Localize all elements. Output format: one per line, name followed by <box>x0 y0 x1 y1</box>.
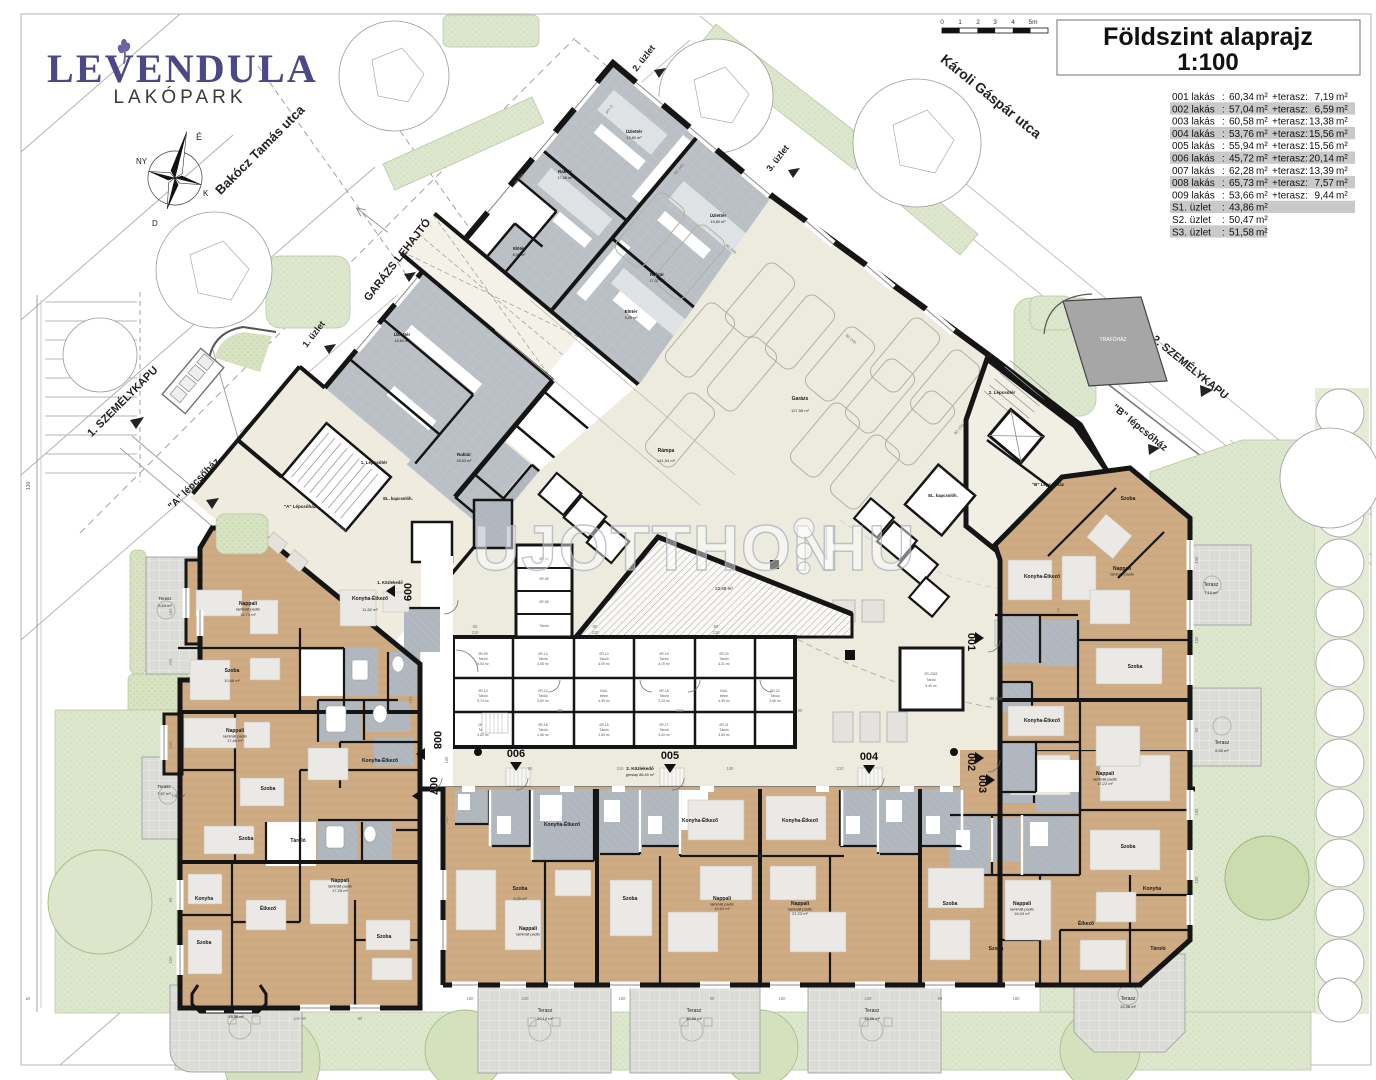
svg-text:008: 008 <box>431 731 443 749</box>
svg-text:13,38 m²: 13,38 m² <box>1120 1004 1136 1009</box>
svg-text:60,58: 60,58 <box>1229 117 1254 128</box>
svg-text:150: 150 <box>1194 876 1199 884</box>
svg-text:Étkező: Étkező <box>1078 919 1094 927</box>
svg-text:EL. kapcsolóh.: EL. kapcsolóh. <box>383 496 413 501</box>
svg-text:Szoba: Szoba <box>377 934 392 940</box>
svg-text:150: 150 <box>467 996 475 1001</box>
svg-text:21,23 m²: 21,23 m² <box>792 911 808 916</box>
svg-text::: : <box>1222 215 1225 226</box>
svg-text:004: 004 <box>860 751 879 763</box>
svg-text:210: 210 <box>713 630 721 635</box>
svg-text:130: 130 <box>26 481 32 490</box>
svg-text:Nappali: Nappali <box>1113 566 1132 572</box>
svg-text:4,31 m²: 4,31 m² <box>718 662 730 666</box>
svg-text:beton: beton <box>600 694 609 698</box>
svg-text:0R-10: 0R-10 <box>478 689 487 693</box>
svg-text:Tároló: Tároló <box>719 657 729 661</box>
svg-text:80: 80 <box>558 708 563 713</box>
svg-text:Garázs: Garázs <box>792 396 809 402</box>
svg-text:15,56: 15,56 <box>1309 141 1334 152</box>
svg-text:210: 210 <box>617 766 625 771</box>
svg-text:002 lakás: 002 lakás <box>1172 104 1215 115</box>
svg-text:Konyha-Étkező: Konyha-Étkező <box>544 820 580 828</box>
svg-text:127,58 m²: 127,58 m² <box>791 408 810 413</box>
svg-text:Szoba: Szoba <box>1121 844 1136 850</box>
svg-text:m²: m² <box>1256 203 1268 214</box>
svg-text:m²: m² <box>1336 117 1348 128</box>
svg-text:80: 80 <box>714 624 719 629</box>
svg-text:+terasz:: +terasz: <box>1272 178 1308 189</box>
svg-text:2,66 m²: 2,66 m² <box>537 733 549 737</box>
svg-text:Tároló: Tároló <box>290 838 305 844</box>
svg-text:LAKÓPARK: LAKÓPARK <box>113 86 246 108</box>
svg-text:0R-2324: 0R-2324 <box>924 672 937 676</box>
svg-text:+terasz:: +terasz: <box>1272 129 1308 140</box>
svg-text:laminált padló: laminált padló <box>516 933 539 937</box>
svg-text:240: 240 <box>865 996 873 1001</box>
svg-text:+terasz:: +terasz: <box>1272 166 1308 177</box>
svg-text::: : <box>1222 154 1225 165</box>
svg-text:Tároló: Tároló <box>1150 946 1165 952</box>
svg-text:m²: m² <box>1256 215 1268 226</box>
svg-text:m²: m² <box>1256 178 1268 189</box>
svg-text:Közl.: Közl. <box>720 689 728 693</box>
svg-text:007 lakás: 007 lakás <box>1172 166 1215 177</box>
svg-text:15,56 m²: 15,56 m² <box>864 1016 880 1021</box>
svg-text:9,46 m²: 9,46 m² <box>925 684 937 688</box>
svg-text:Elötér: Elötér <box>513 246 525 251</box>
svg-text:m²: m² <box>1336 129 1348 140</box>
svg-text:m²: m² <box>1256 117 1268 128</box>
svg-text:Nappali: Nappali <box>239 601 258 607</box>
svg-text:16,09 m²: 16,09 m² <box>1014 911 1030 916</box>
svg-text:7,57 m²: 7,57 m² <box>157 791 171 796</box>
svg-text:Üzlettér: Üzlettér <box>710 212 727 218</box>
svg-text:62,28: 62,28 <box>1229 166 1254 177</box>
svg-text:50,47: 50,47 <box>1229 215 1254 226</box>
svg-text:Tároló: Tároló <box>538 694 548 698</box>
svg-text:Konyha-Étkező: Konyha-Étkező <box>362 756 398 764</box>
svg-text:13,39 m²: 13,39 m² <box>228 1014 244 1019</box>
svg-text:100: 100 <box>727 766 735 771</box>
svg-text:4,39 m²: 4,39 m² <box>598 699 610 703</box>
svg-text:006 lakás: 006 lakás <box>1172 154 1215 165</box>
svg-text:greslap 86,49 m²: greslap 86,49 m² <box>626 773 655 777</box>
svg-text::: : <box>1222 92 1225 103</box>
svg-text:15,56: 15,56 <box>1309 129 1334 140</box>
svg-text:0R-22: 0R-22 <box>770 689 779 693</box>
svg-text:6,59 m²: 6,59 m² <box>1215 748 1229 753</box>
svg-text:Terasz: Terasz <box>1204 582 1219 588</box>
svg-text:17,37 m²: 17,37 m² <box>650 279 666 283</box>
svg-text:Konyha: Konyha <box>1143 886 1162 892</box>
svg-text:+terasz:: +terasz: <box>1272 92 1308 103</box>
svg-text:S3. üzlet: S3. üzlet <box>1172 227 1211 238</box>
svg-text::: : <box>1222 104 1225 115</box>
svg-text:004 lakás: 004 lakás <box>1172 129 1215 140</box>
svg-text:240: 240 <box>168 658 173 666</box>
svg-text:150: 150 <box>1194 556 1199 564</box>
svg-text:150: 150 <box>1194 808 1199 816</box>
svg-text:17,25 m²: 17,25 m² <box>332 888 348 893</box>
svg-text::: : <box>1222 190 1225 201</box>
svg-text:13,39: 13,39 <box>1309 166 1334 177</box>
svg-text:2: 2 <box>976 19 980 26</box>
svg-text:3,33 m²: 3,33 m² <box>658 699 670 703</box>
svg-text:+terasz:: +terasz: <box>1272 117 1308 128</box>
svg-text:3,82 m²: 3,82 m² <box>477 733 489 737</box>
svg-text:Terasz: Terasz <box>1121 996 1136 1002</box>
svg-text:m²: m² <box>1336 104 1348 115</box>
svg-text:Konyha-Étkező: Konyha-Étkező <box>1024 716 1060 724</box>
svg-text:9,29 m²: 9,29 m² <box>625 316 639 320</box>
svg-text:150: 150 <box>779 996 787 1001</box>
svg-text:Szoba: Szoba <box>1121 496 1136 502</box>
svg-text:m²: m² <box>1256 166 1268 177</box>
svg-text:90: 90 <box>168 897 173 902</box>
svg-text:16,73 m²: 16,73 m² <box>240 612 256 617</box>
svg-text:2. Lépcsőtér: 2. Lépcsőtér <box>989 390 1016 395</box>
svg-text:+terasz:: +terasz: <box>1272 104 1308 115</box>
svg-text:0R-09: 0R-09 <box>478 652 487 656</box>
svg-text:1: 1 <box>958 19 962 26</box>
svg-text:Nappali: Nappali <box>1096 771 1115 777</box>
svg-text:17,66 m²: 17,66 m² <box>558 176 574 180</box>
svg-text:65,73: 65,73 <box>1229 178 1254 189</box>
svg-text:1. Lépcsőtér: 1. Lépcsőtér <box>361 460 388 465</box>
svg-text:005: 005 <box>661 750 679 762</box>
svg-text:100: 100 <box>444 756 449 764</box>
svg-text:Elötér: Elötér <box>625 309 638 314</box>
svg-text:Szoba: Szoba <box>225 668 240 674</box>
svg-text:10,66 m²: 10,66 m² <box>224 678 240 683</box>
svg-text:13,38: 13,38 <box>1309 117 1334 128</box>
svg-text::: : <box>1222 166 1225 177</box>
svg-text:150: 150 <box>619 996 627 1001</box>
svg-text:1:100: 1:100 <box>1177 49 1238 76</box>
svg-text:m²: m² <box>1256 141 1268 152</box>
svg-text:Konyha-Étkező: Konyha-Étkező <box>782 816 818 824</box>
svg-text:Raktár: Raktár <box>650 272 664 277</box>
svg-text:9,44: 9,44 <box>1315 190 1335 201</box>
svg-text:80: 80 <box>798 708 803 713</box>
svg-text:009: 009 <box>401 583 413 601</box>
svg-text:Szoba: Szoba <box>239 836 254 842</box>
svg-text:Földszint alaprajz: Földszint alaprajz <box>1103 23 1313 51</box>
svg-text:Terasz: Terasz <box>158 596 172 601</box>
svg-text:0R-18: 0R-18 <box>659 689 668 693</box>
svg-text:laminált padló: laminált padló <box>236 608 259 612</box>
svg-text:4,19 m²: 4,19 m² <box>658 662 670 666</box>
svg-text:D: D <box>152 219 158 228</box>
svg-text:Konyha-Étkező: Konyha-Étkező <box>352 594 388 602</box>
svg-text:m²: m² <box>1256 190 1268 201</box>
svg-text:80: 80 <box>473 624 478 629</box>
svg-text:7,57: 7,57 <box>1315 178 1335 189</box>
svg-text:NY: NY <box>136 157 148 166</box>
svg-text:S1. üzlet: S1. üzlet <box>1172 203 1211 214</box>
svg-text:Nappali: Nappali <box>713 896 732 902</box>
svg-text:m²: m² <box>1336 190 1348 201</box>
svg-text:Rámpa: Rámpa <box>658 448 675 454</box>
svg-text:TRAFÓHÁZ: TRAFÓHÁZ <box>1100 336 1127 343</box>
svg-text:7,19 m²: 7,19 m² <box>1204 590 1218 595</box>
svg-text:1. Közlekedő: 1. Közlekedő <box>377 580 403 585</box>
svg-text:0R-19: 0R-19 <box>659 652 668 656</box>
svg-text:LEVENDULA: LEVENDULA <box>47 46 318 91</box>
svg-text:Nappali: Nappali <box>791 901 810 907</box>
svg-text:210: 210 <box>444 816 449 824</box>
svg-text:Nappali: Nappali <box>226 728 245 734</box>
svg-text::: : <box>1222 227 1225 238</box>
svg-text:3,66 m²: 3,66 m² <box>769 699 781 703</box>
svg-text:"B" Lépcsőház: "B" Lépcsőház <box>1032 482 1065 487</box>
svg-text:210: 210 <box>472 630 480 635</box>
svg-text:53,66: 53,66 <box>1229 190 1254 201</box>
svg-text:É: É <box>196 132 202 142</box>
svg-text:105: 105 <box>408 696 413 704</box>
svg-text:Szoba: Szoba <box>1128 664 1143 670</box>
svg-text:Raktár: Raktár <box>558 169 572 174</box>
svg-text::: : <box>1222 117 1225 128</box>
svg-text:43,86: 43,86 <box>1229 203 1254 214</box>
svg-text:m²: m² <box>1256 104 1268 115</box>
svg-text:45,72: 45,72 <box>1229 154 1254 165</box>
svg-text:+terasz:: +terasz: <box>1272 141 1308 152</box>
svg-text:11,82 m²: 11,82 m² <box>362 607 378 612</box>
svg-text:150: 150 <box>1194 636 1199 644</box>
svg-text:m²: m² <box>1336 166 1348 177</box>
svg-text:17,66 m²: 17,66 m² <box>227 738 243 743</box>
svg-text:Tároló: Tároló <box>659 694 669 698</box>
svg-text:210: 210 <box>677 708 685 713</box>
svg-text::: : <box>1222 129 1225 140</box>
svg-text:Tároló: Tároló <box>478 694 488 698</box>
svg-text:7,19: 7,19 <box>1315 92 1335 103</box>
svg-text:Tároló: Tároló <box>478 657 488 661</box>
svg-text:S2. üzlet: S2. üzlet <box>1172 215 1211 226</box>
svg-text:m²: m² <box>1336 154 1348 165</box>
svg-text:3,80 m²: 3,80 m² <box>537 699 549 703</box>
svg-text:001 lakás: 001 lakás <box>1172 92 1215 103</box>
svg-text:Tároló: Tároló <box>770 694 780 698</box>
svg-text:Terasz: Terasz <box>1215 740 1230 746</box>
svg-text:Terasz: Terasz <box>229 1006 244 1012</box>
svg-text:141,54 m²: 141,54 m² <box>657 458 676 463</box>
svg-text:Üzlettér: Üzlettér <box>626 128 643 134</box>
svg-text:150: 150 <box>168 608 173 616</box>
svg-text:9,25 m²: 9,25 m² <box>513 896 527 901</box>
svg-text:laminált padló: laminált padló <box>1110 573 1133 577</box>
svg-text:005 lakás: 005 lakás <box>1172 141 1215 152</box>
svg-text:003 lakás: 003 lakás <box>1172 117 1215 128</box>
svg-text:4,39 m²: 4,39 m² <box>718 699 730 703</box>
svg-text:Közl.: Közl. <box>600 689 608 693</box>
svg-text:90: 90 <box>528 766 533 771</box>
svg-text:m²: m² <box>1256 92 1268 103</box>
svg-text:22,68 m²: 22,68 m² <box>715 586 733 591</box>
svg-text:210: 210 <box>837 766 845 771</box>
svg-text:Tároló: Tároló <box>599 657 609 661</box>
svg-text::: : <box>1222 178 1225 189</box>
svg-text:3,44 m²: 3,44 m² <box>658 733 670 737</box>
svg-text:Tároló: Tároló <box>538 728 548 732</box>
svg-text:4: 4 <box>1011 19 1015 26</box>
svg-text:0R-06: 0R-06 <box>539 600 548 604</box>
svg-text:Terasz: Terasz <box>687 1008 702 1014</box>
svg-text:17,22 m²: 17,22 m² <box>1097 781 1113 786</box>
svg-text:150: 150 <box>168 741 173 749</box>
svg-text:240: 240 <box>522 996 530 1001</box>
svg-text:K: K <box>203 189 209 198</box>
svg-text:UJOTTHON: UJOTTHON <box>473 512 841 584</box>
svg-text:EL. kapcsolóh.: EL. kapcsolóh. <box>928 493 958 498</box>
svg-text:90: 90 <box>1194 727 1199 732</box>
svg-text:Nappali: Nappali <box>331 878 350 884</box>
svg-text:80 210: 80 210 <box>990 696 1003 701</box>
svg-text:5: 5 <box>26 997 32 1000</box>
svg-text:+terasz:: +terasz: <box>1272 154 1308 165</box>
svg-text:m²: m² <box>1256 129 1268 140</box>
svg-text:7,57 m²: 7,57 m² <box>171 793 185 798</box>
svg-text:2. Közlekedő: 2. Közlekedő <box>626 766 654 771</box>
svg-text::: : <box>1222 141 1225 152</box>
svg-text:m²: m² <box>1336 92 1348 103</box>
svg-text:53,76: 53,76 <box>1229 129 1254 140</box>
svg-text:007: 007 <box>427 777 439 795</box>
svg-text:Tároló: Tároló <box>599 728 609 732</box>
svg-text:0R-14: 0R-14 <box>599 652 608 656</box>
svg-text:19,80 m²: 19,80 m² <box>627 136 643 140</box>
svg-text:Tároló: Tároló <box>926 678 936 682</box>
svg-text:Szoba: Szoba <box>943 901 958 907</box>
svg-text:m²: m² <box>1256 154 1268 165</box>
svg-text:8,00 m²: 8,00 m² <box>513 253 527 257</box>
svg-text:5,74 m²: 5,74 m² <box>477 699 489 703</box>
svg-text:m²: m² <box>1336 178 1348 189</box>
svg-text:Raktár: Raktár <box>457 452 471 457</box>
svg-text:Tároló: Tároló <box>538 657 548 661</box>
svg-text:57,04: 57,04 <box>1229 104 1254 115</box>
svg-text:55,94: 55,94 <box>1229 141 1254 152</box>
svg-text:51,58: 51,58 <box>1229 227 1254 238</box>
svg-text:Tároló: Tároló <box>659 728 669 732</box>
svg-text:75: 75 <box>1056 607 1061 612</box>
svg-text:19,80 m²: 19,80 m² <box>711 220 727 224</box>
svg-text:0R-17: 0R-17 <box>659 723 668 727</box>
svg-text:6,59: 6,59 <box>1315 104 1335 115</box>
svg-text:3,49 m²: 3,49 m² <box>598 662 610 666</box>
svg-text:Szoba: Szoba <box>261 786 276 792</box>
svg-text:Szoba: Szoba <box>197 940 212 946</box>
svg-text:HU: HU <box>820 512 916 584</box>
svg-text:19,63 m²: 19,63 m² <box>714 906 730 911</box>
svg-text:80: 80 <box>593 624 598 629</box>
svg-text:Tároló: Tároló <box>659 657 669 661</box>
svg-text:Terasz: Terasz <box>865 1008 880 1014</box>
svg-text:beton: beton <box>720 694 729 698</box>
svg-text:Nappali: Nappali <box>519 926 538 932</box>
svg-text:0R-16: 0R-16 <box>538 723 547 727</box>
svg-text:Terasz: Terasz <box>538 1008 553 1014</box>
svg-text:0R-20: 0R-20 <box>719 652 728 656</box>
svg-text:Étkező: Étkező <box>260 904 276 912</box>
svg-text:Konyha: Konyha <box>195 896 214 902</box>
svg-text:150: 150 <box>168 956 173 964</box>
svg-text:4,65 m²: 4,65 m² <box>537 662 549 666</box>
svg-text:90: 90 <box>710 996 715 1001</box>
svg-text:"A" Lépcsőház: "A" Lépcsőház <box>284 504 317 509</box>
svg-text:Terasz: Terasz <box>157 784 171 789</box>
svg-text:008 lakás: 008 lakás <box>1172 178 1215 189</box>
svg-text:m²: m² <box>1256 227 1268 238</box>
svg-text:16,60 m²: 16,60 m² <box>395 339 411 343</box>
svg-text:18,93 m²: 18,93 m² <box>457 459 473 463</box>
svg-text:0R-12: 0R-12 <box>538 689 547 693</box>
svg-text:20,14 m²: 20,14 m² <box>537 1016 553 1021</box>
svg-text:90: 90 <box>938 996 943 1001</box>
svg-text:0R-15: 0R-15 <box>599 723 608 727</box>
svg-text:pm 90: pm 90 <box>294 1016 306 1021</box>
svg-text:9,44 m²: 9,44 m² <box>158 603 172 608</box>
svg-text:Szoba: Szoba <box>623 896 638 902</box>
svg-text:5,53 m²: 5,53 m² <box>477 662 489 666</box>
svg-text:Tároló: Tároló <box>719 728 729 732</box>
svg-text:5m: 5m <box>1028 19 1037 26</box>
svg-text:Üzlettér: Üzlettér <box>394 331 411 337</box>
svg-text:2,64 m²: 2,64 m² <box>598 733 610 737</box>
svg-text:0R-21: 0R-21 <box>719 723 728 727</box>
svg-text:3,64 m²: 3,64 m² <box>718 733 730 737</box>
svg-text:15,56 m²: 15,56 m² <box>686 1016 702 1021</box>
svg-text:150: 150 <box>1013 996 1021 1001</box>
svg-text::: : <box>1222 203 1225 214</box>
svg-text:Nappali: Nappali <box>1013 901 1032 907</box>
svg-text:210: 210 <box>592 630 600 635</box>
svg-text:Konyha-Étkező: Konyha-Étkező <box>1024 572 1060 580</box>
svg-text:3: 3 <box>993 19 997 26</box>
svg-text:Konyha-Étkező: Konyha-Étkező <box>682 816 718 824</box>
svg-text:90: 90 <box>358 1016 363 1021</box>
svg-text:0R-13: 0R-13 <box>538 652 547 656</box>
svg-text:m²: m² <box>1336 141 1348 152</box>
svg-text:Szoba: Szoba <box>513 886 528 892</box>
svg-text:60,34: 60,34 <box>1229 92 1254 103</box>
svg-text:0: 0 <box>940 19 944 26</box>
svg-text:009 lakás: 009 lakás <box>1172 190 1215 201</box>
svg-text:Szoba: Szoba <box>989 946 1004 952</box>
svg-text:006: 006 <box>507 748 525 760</box>
svg-text:+terasz:: +terasz: <box>1272 190 1308 201</box>
svg-text:20,14: 20,14 <box>1309 154 1334 165</box>
svg-text:Tároló: Tároló <box>539 624 549 628</box>
